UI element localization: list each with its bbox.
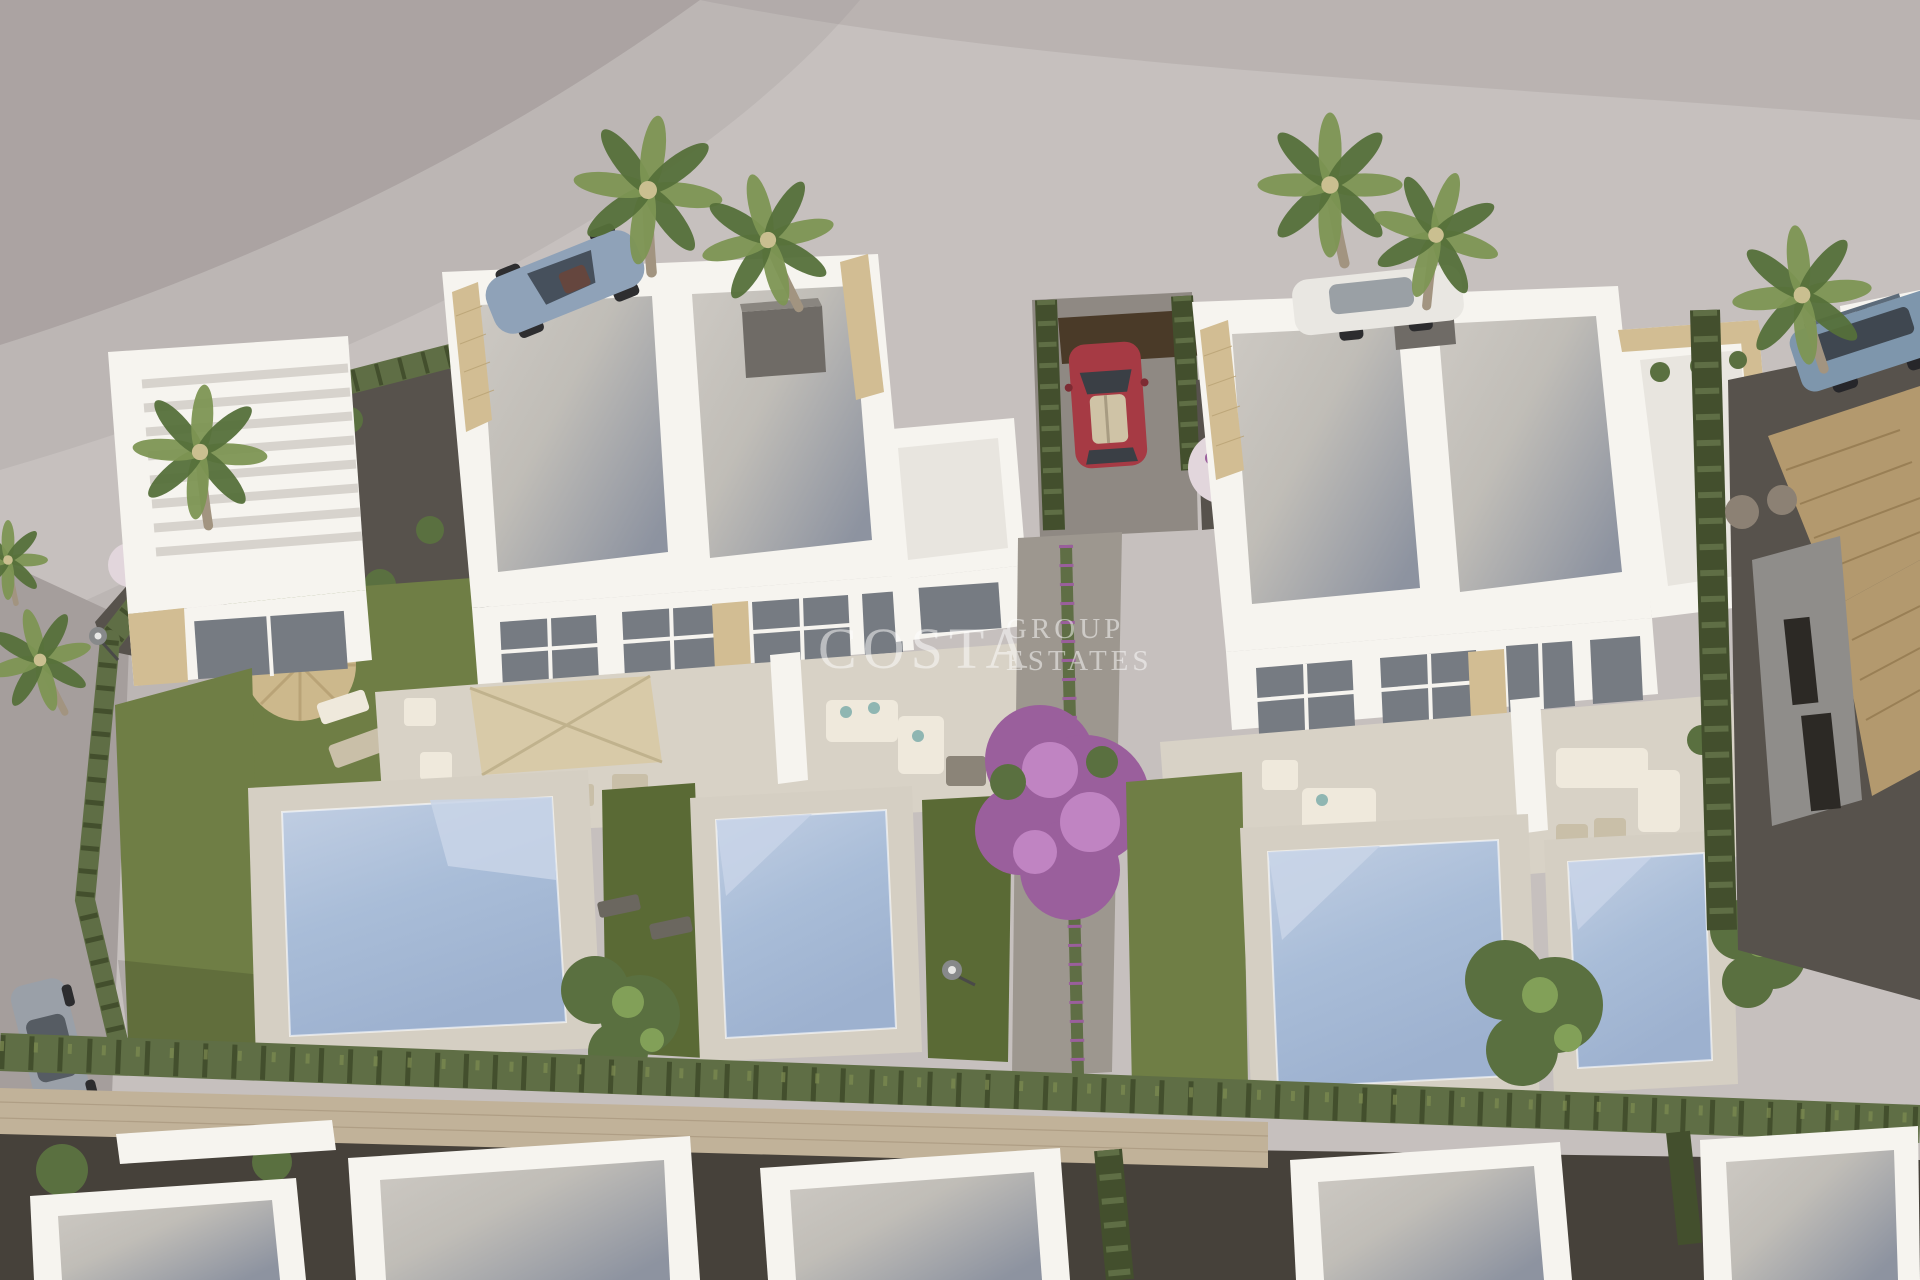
chimney [742, 306, 826, 378]
roof-panel [1438, 316, 1622, 592]
ornamental-stone [1767, 485, 1797, 515]
armchair [404, 698, 436, 726]
outdoor-sofa [1556, 748, 1648, 788]
watermark-sub1: GROUP [1006, 613, 1124, 645]
left-villa-side-annex [880, 418, 1030, 642]
ornamental-stone [1725, 495, 1759, 529]
lane-shrub [36, 1144, 88, 1196]
roof-panel [480, 296, 668, 572]
boundary-hedge [1705, 310, 1722, 930]
right-villa-roof [1192, 286, 1652, 652]
watermark-brand: COSTA [818, 616, 1034, 681]
pool-left-1 [248, 770, 602, 1062]
cypress-column [1108, 1150, 1120, 1280]
right-boundary [1705, 290, 1920, 1000]
driveway-hedge [1046, 300, 1054, 530]
scene-svg: COSTA GROUP ESTATES [0, 0, 1920, 1280]
right-villa [1160, 286, 1782, 904]
render-stage: COSTA GROUP ESTATES [0, 0, 1920, 1280]
cypress-column [1678, 1132, 1690, 1244]
watermark: COSTA GROUP ESTATES [818, 613, 1153, 681]
planter [1650, 362, 1670, 382]
window [1590, 636, 1643, 704]
outdoor-sofa [1638, 770, 1680, 832]
armchair [420, 752, 452, 780]
stone-pillar [1468, 649, 1507, 719]
armchair [1262, 760, 1298, 790]
red-car [1062, 340, 1154, 470]
roof-panel [1232, 326, 1420, 604]
planter [1729, 351, 1747, 369]
stone-pillar [712, 601, 751, 671]
pool-left-2 [690, 786, 922, 1062]
lawn-patch [1126, 772, 1248, 1090]
left-villa-pergola-annex [108, 336, 372, 686]
watermark-sub2: ESTATES [1006, 645, 1153, 677]
